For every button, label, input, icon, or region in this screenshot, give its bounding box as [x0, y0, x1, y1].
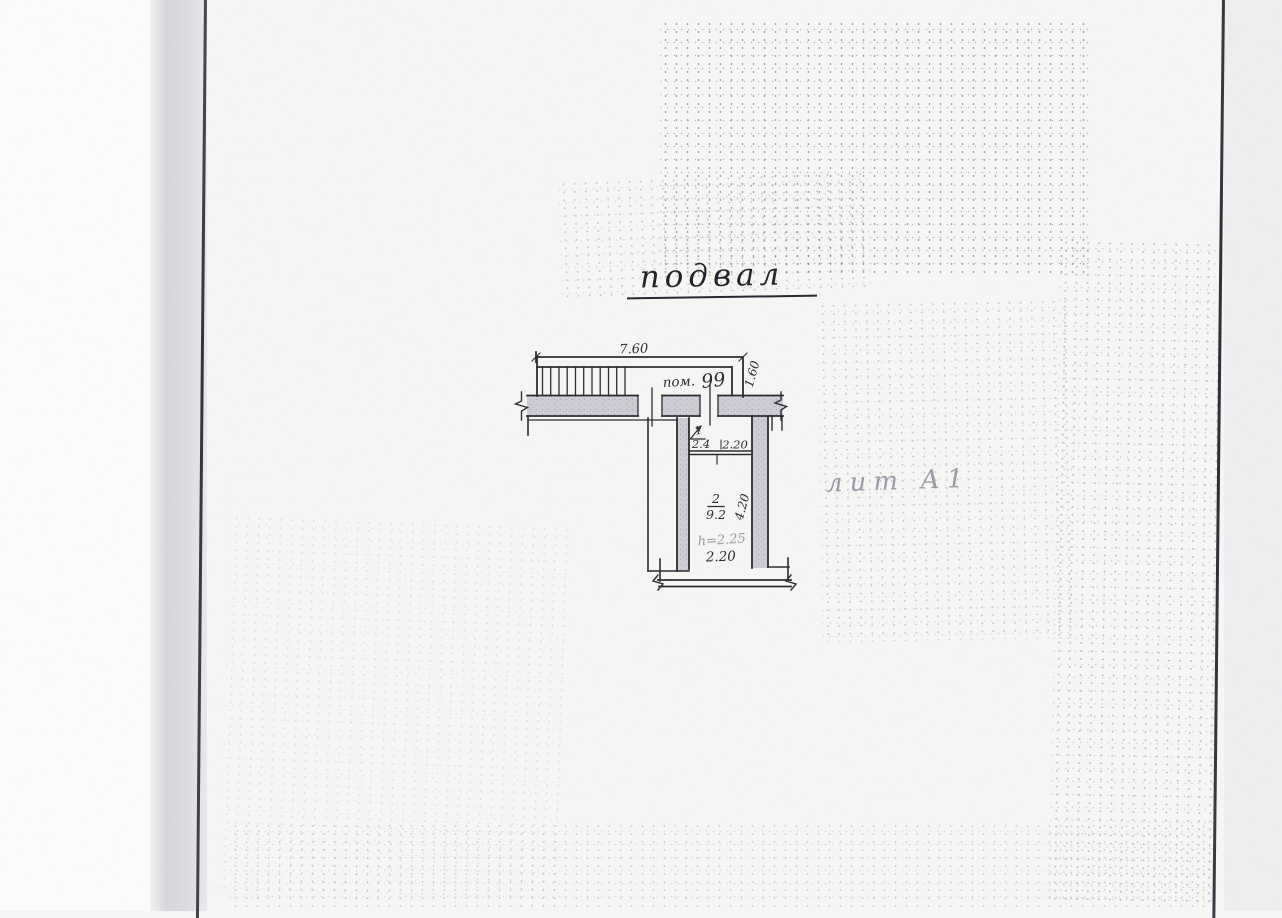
room2-width-dim: 2.20	[705, 548, 737, 565]
stairs-hatching	[543, 367, 626, 396]
scan-right-margin	[1224, 0, 1282, 911]
room2-number: 2	[711, 491, 720, 506]
room2-area: 9.2	[706, 507, 726, 522]
corridor-room-number: 99	[700, 369, 726, 393]
dim-side-label: 1.60	[742, 359, 763, 389]
scan-left-margin	[0, 0, 152, 911]
break-symbol-left	[516, 392, 528, 420]
noise-cluster-bottom	[230, 822, 1210, 907]
lit-annotation: лит А1	[826, 463, 987, 499]
room2-height-note: h=2.25	[697, 531, 746, 549]
noise-cluster-top-right	[660, 20, 1090, 275]
room1-width-dim: 2.20	[721, 438, 748, 452]
room1-area: 2.4	[691, 437, 710, 451]
floor-plan-drawing: 7.60 1.60 пом. 99 1 2.4 2.20 2 9.2 4.20 …	[505, 338, 805, 598]
baseline-break-left	[653, 575, 663, 590]
noise-cluster-right-strip	[1049, 239, 1226, 907]
dim-top-label: 7.60	[619, 342, 648, 358]
room1-number: 1	[693, 423, 704, 438]
scanned-page: подвал	[0, 0, 1282, 911]
bottom-baseline	[658, 580, 791, 587]
room-divider	[689, 451, 752, 455]
room2-depth-dim: 4.20	[732, 492, 753, 523]
page-title: подвал	[612, 256, 813, 296]
page-title-underline	[627, 295, 817, 300]
corridor-label-prefix: пом.	[662, 373, 695, 391]
scan-right-fold-line	[1212, 0, 1224, 918]
